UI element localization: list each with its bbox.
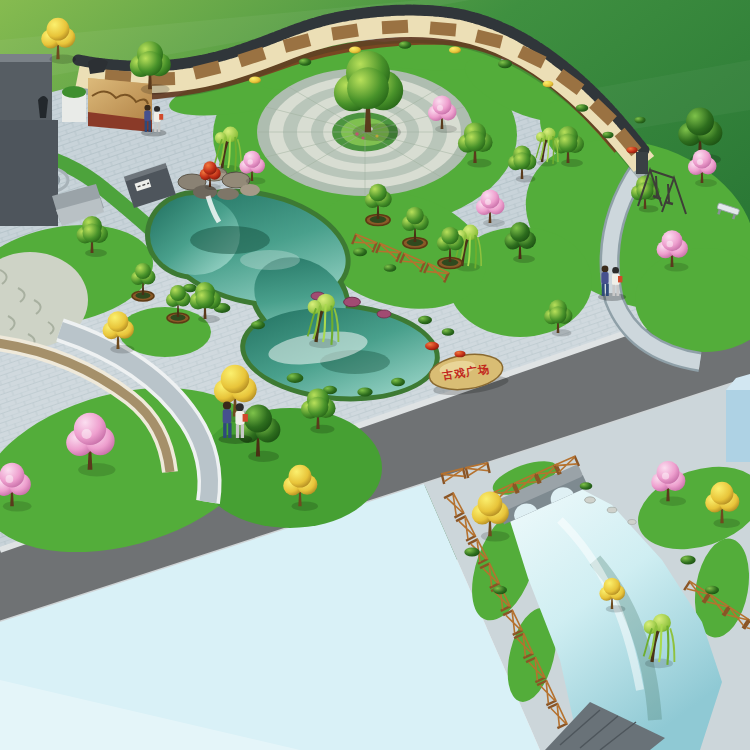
shrub-yellow [349, 46, 361, 53]
shrub [580, 482, 593, 490]
shrub [602, 132, 613, 139]
canal-rock [628, 520, 636, 525]
pond-glare [240, 250, 300, 270]
shrub-purple [344, 297, 361, 307]
shrub [498, 60, 512, 68]
shrub [705, 586, 719, 594]
mural-panel [382, 20, 409, 34]
monument-cap [0, 54, 52, 62]
canal-rock [607, 507, 617, 513]
shrub [384, 264, 397, 272]
shrub [576, 104, 589, 112]
shrub-purple [377, 310, 391, 318]
shrub-red [425, 342, 439, 350]
shrub-yellow [449, 46, 461, 53]
shrub [399, 41, 412, 49]
park-scene-canvas: 古戏广场 [0, 0, 750, 750]
shrub [634, 117, 645, 124]
shrub [464, 547, 479, 556]
blue-structure [726, 374, 750, 462]
shrub [418, 316, 432, 324]
shrub [391, 378, 405, 386]
pond-reflection [190, 226, 270, 254]
shrub [357, 387, 372, 396]
canal-rock [585, 497, 596, 503]
shrub-yellow [249, 76, 261, 83]
planter-box-plants [62, 86, 86, 98]
shrub [442, 328, 455, 336]
monument-lower-block [0, 120, 58, 226]
wall-end-pillar [636, 152, 648, 174]
shrub-red [626, 147, 637, 154]
shrub [251, 321, 265, 329]
shrub [299, 58, 312, 66]
mural-panel [429, 21, 456, 36]
shrub-yellow [543, 81, 554, 87]
landscape-rendering: 古戏广场 [0, 0, 750, 750]
shrub [287, 373, 304, 383]
shrub-red [454, 351, 465, 358]
shrub [353, 248, 367, 256]
shrub [493, 586, 507, 594]
shrub [680, 555, 695, 564]
